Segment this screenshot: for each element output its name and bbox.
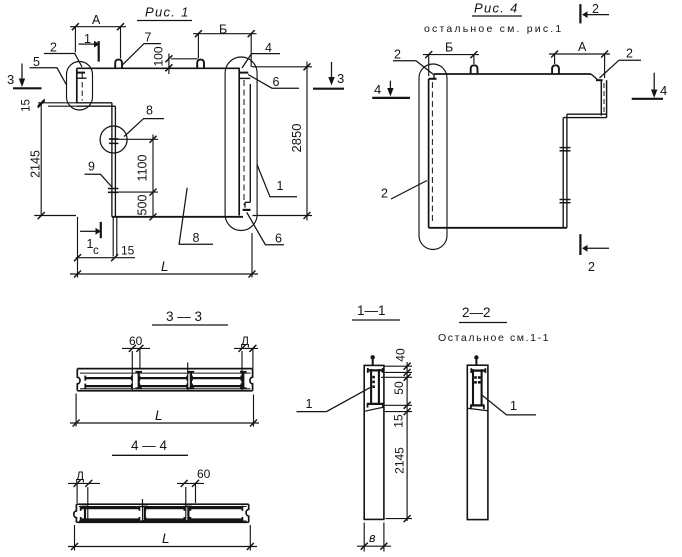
- svg-text:А: А: [578, 40, 587, 54]
- svg-text:2145: 2145: [29, 150, 43, 178]
- svg-text:4 — 4: 4 — 4: [131, 438, 168, 453]
- svg-text:9: 9: [88, 160, 95, 174]
- svg-text:8: 8: [146, 104, 153, 118]
- svg-text:Д: Д: [76, 469, 84, 483]
- svg-text:L: L: [161, 259, 169, 274]
- svg-text:8: 8: [193, 231, 200, 245]
- svg-text:2: 2: [394, 48, 401, 62]
- svg-text:Д: Д: [241, 334, 249, 348]
- svg-text:2: 2: [50, 41, 57, 55]
- svg-text:40: 40: [394, 348, 408, 362]
- svg-text:15: 15: [121, 244, 135, 258]
- svg-text:15: 15: [392, 414, 406, 428]
- svg-text:100: 100: [152, 46, 166, 66]
- svg-text:2145: 2145: [393, 447, 407, 474]
- svg-text:1: 1: [84, 32, 91, 46]
- svg-text:60: 60: [129, 334, 143, 348]
- svg-text:5: 5: [33, 55, 40, 69]
- svg-text:3: 3: [7, 72, 14, 87]
- svg-text:15: 15: [21, 99, 33, 112]
- svg-text:60: 60: [197, 467, 211, 481]
- svg-text:3: 3: [337, 71, 344, 86]
- svg-text:Остальное см.1-1: Остальное см.1-1: [438, 332, 550, 344]
- svg-text:2: 2: [592, 2, 599, 16]
- svg-text:в: в: [369, 531, 376, 545]
- svg-text:500: 500: [136, 195, 150, 216]
- svg-text:50: 50: [392, 381, 406, 395]
- svg-text:2—2: 2—2: [462, 305, 491, 320]
- svg-text:Рис. 1: Рис. 1: [145, 5, 190, 20]
- svg-text:Б: Б: [219, 23, 227, 37]
- svg-text:4: 4: [660, 83, 667, 98]
- svg-text:Б: Б: [445, 41, 453, 55]
- svg-text:2: 2: [588, 260, 595, 274]
- svg-text:2850: 2850: [289, 124, 304, 153]
- svg-text:L: L: [155, 408, 163, 423]
- svg-text:6: 6: [275, 232, 282, 246]
- svg-text:2: 2: [381, 187, 388, 201]
- svg-text:7: 7: [145, 31, 152, 45]
- svg-text:А: А: [92, 13, 101, 27]
- svg-text:1: 1: [306, 397, 313, 411]
- svg-text:1: 1: [277, 179, 284, 193]
- svg-text:3 — 3: 3 — 3: [166, 309, 202, 324]
- svg-text:1100: 1100: [136, 155, 150, 182]
- svg-text:1: 1: [87, 237, 94, 251]
- svg-text:Рис. 4: Рис. 4: [474, 1, 519, 16]
- svg-text:с: с: [93, 245, 99, 257]
- svg-text:6: 6: [273, 75, 280, 89]
- svg-text:1—1: 1—1: [357, 303, 386, 318]
- svg-text:остальное см. рис.1: остальное см. рис.1: [424, 23, 563, 35]
- svg-text:4: 4: [265, 41, 272, 55]
- svg-text:1: 1: [510, 399, 517, 413]
- svg-text:4: 4: [374, 82, 381, 97]
- svg-text:L: L: [162, 531, 170, 546]
- svg-text:2: 2: [626, 47, 633, 61]
